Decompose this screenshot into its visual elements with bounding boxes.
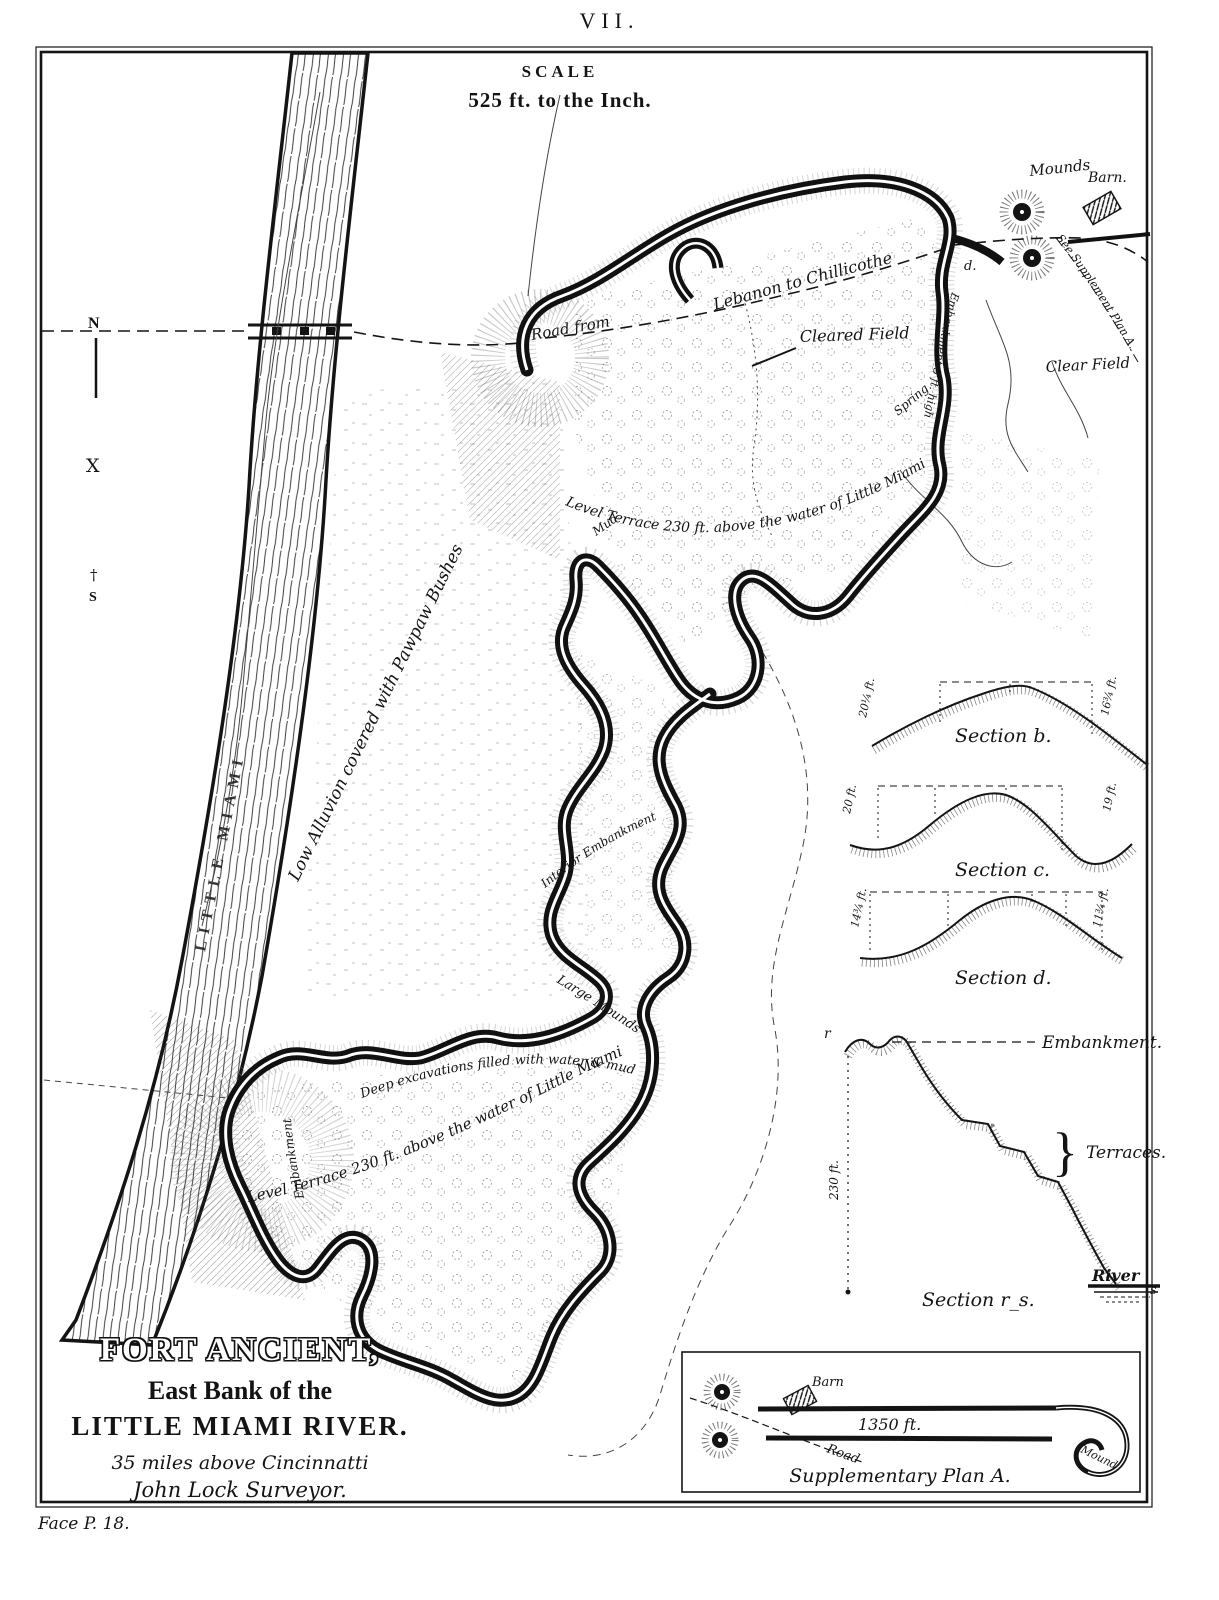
scale-value: 525 ft. to the Inch.	[380, 88, 740, 113]
section-d-title: Section d.	[955, 967, 1052, 989]
barn-label: Barn.	[1087, 170, 1127, 186]
supplementary-barn-label: Barn	[811, 1375, 844, 1390]
supplementary-plan: Barn 1350 ft. Road Mound Supplementary P…	[682, 1352, 1140, 1492]
rs-height-label: 230 ft.	[827, 1160, 841, 1201]
section-rs-title: Section r_s.	[922, 1289, 1035, 1311]
map-note-distance: 35 miles above Cincinnatti	[70, 1452, 410, 1476]
section-c-title: Section c.	[955, 859, 1050, 881]
rs-river-label: River	[1091, 1266, 1141, 1285]
section-d: 14¾ ft. 11¾ ft. Section d.	[848, 887, 1124, 989]
supplementary-caption: Supplementary Plan A.	[789, 1465, 1010, 1487]
section-c-left-height: 20 ft.	[840, 783, 859, 816]
map-subtitle-2: LITTLE MIAMI RIVER.	[70, 1410, 410, 1444]
section-c-right-height: 19 ft.	[1100, 781, 1119, 813]
compass-cross-icon: †	[90, 566, 98, 584]
mound-symbol	[1014, 240, 1050, 276]
map-title: FORT ANCIENT,	[70, 1330, 410, 1371]
section-d-right-height: 11¾ ft.	[1090, 887, 1111, 929]
rs-terraces-label: Terraces.	[1086, 1143, 1166, 1163]
section-b-right-height: 16¾ ft.	[1098, 675, 1119, 717]
section-b-title: Section b.	[955, 725, 1052, 747]
point-s-label: s	[1150, 1283, 1157, 1298]
compass-north-label: N	[88, 315, 100, 332]
section-d-left-height: 14¾ ft.	[848, 887, 869, 929]
mounds-label: Mounds	[1028, 156, 1092, 180]
station-x-mark: X	[86, 455, 100, 477]
section-b: 20¼ ft. 16¾ ft. Section b.	[856, 675, 1148, 768]
title-block: FORT ANCIENT, East Bank of the LITTLE MI…	[70, 1330, 410, 1504]
mound-symbol	[1004, 194, 1040, 230]
section-rs: r Embankment. } Terraces. 230 ft. River …	[824, 1026, 1166, 1311]
scale-block: SCALE 525 ft. to the Inch.	[380, 62, 740, 113]
rs-embankment-label: Embankment.	[1041, 1033, 1162, 1053]
compass-south-label: S	[89, 590, 97, 605]
terraces-brace: }	[1052, 1122, 1078, 1182]
clear-field-label: Clear Field	[1045, 354, 1130, 376]
compass: N X † S	[86, 315, 100, 605]
scale-title: SCALE	[380, 62, 740, 82]
wall-length-label: 1350 ft.	[858, 1415, 921, 1434]
point-d-label: d.	[964, 259, 976, 274]
cleared-field-label: Cleared Field	[799, 323, 909, 346]
see-plan-label: See Supplement Plan A.	[1054, 232, 1139, 351]
section-b-left-height: 20¼ ft.	[856, 677, 877, 720]
map-subtitle-1: East Bank of the	[70, 1375, 410, 1408]
point-r-label: r	[824, 1026, 832, 1042]
map-plate-page: VII.	[0, 0, 1219, 1600]
section-c: 20 ft. 19 ft. Section c.	[840, 781, 1134, 881]
map-note-surveyor: John Lock Surveyor.	[70, 1477, 410, 1503]
barn-symbol	[1083, 191, 1121, 224]
face-page-note: Face P. 18.	[38, 1514, 130, 1534]
